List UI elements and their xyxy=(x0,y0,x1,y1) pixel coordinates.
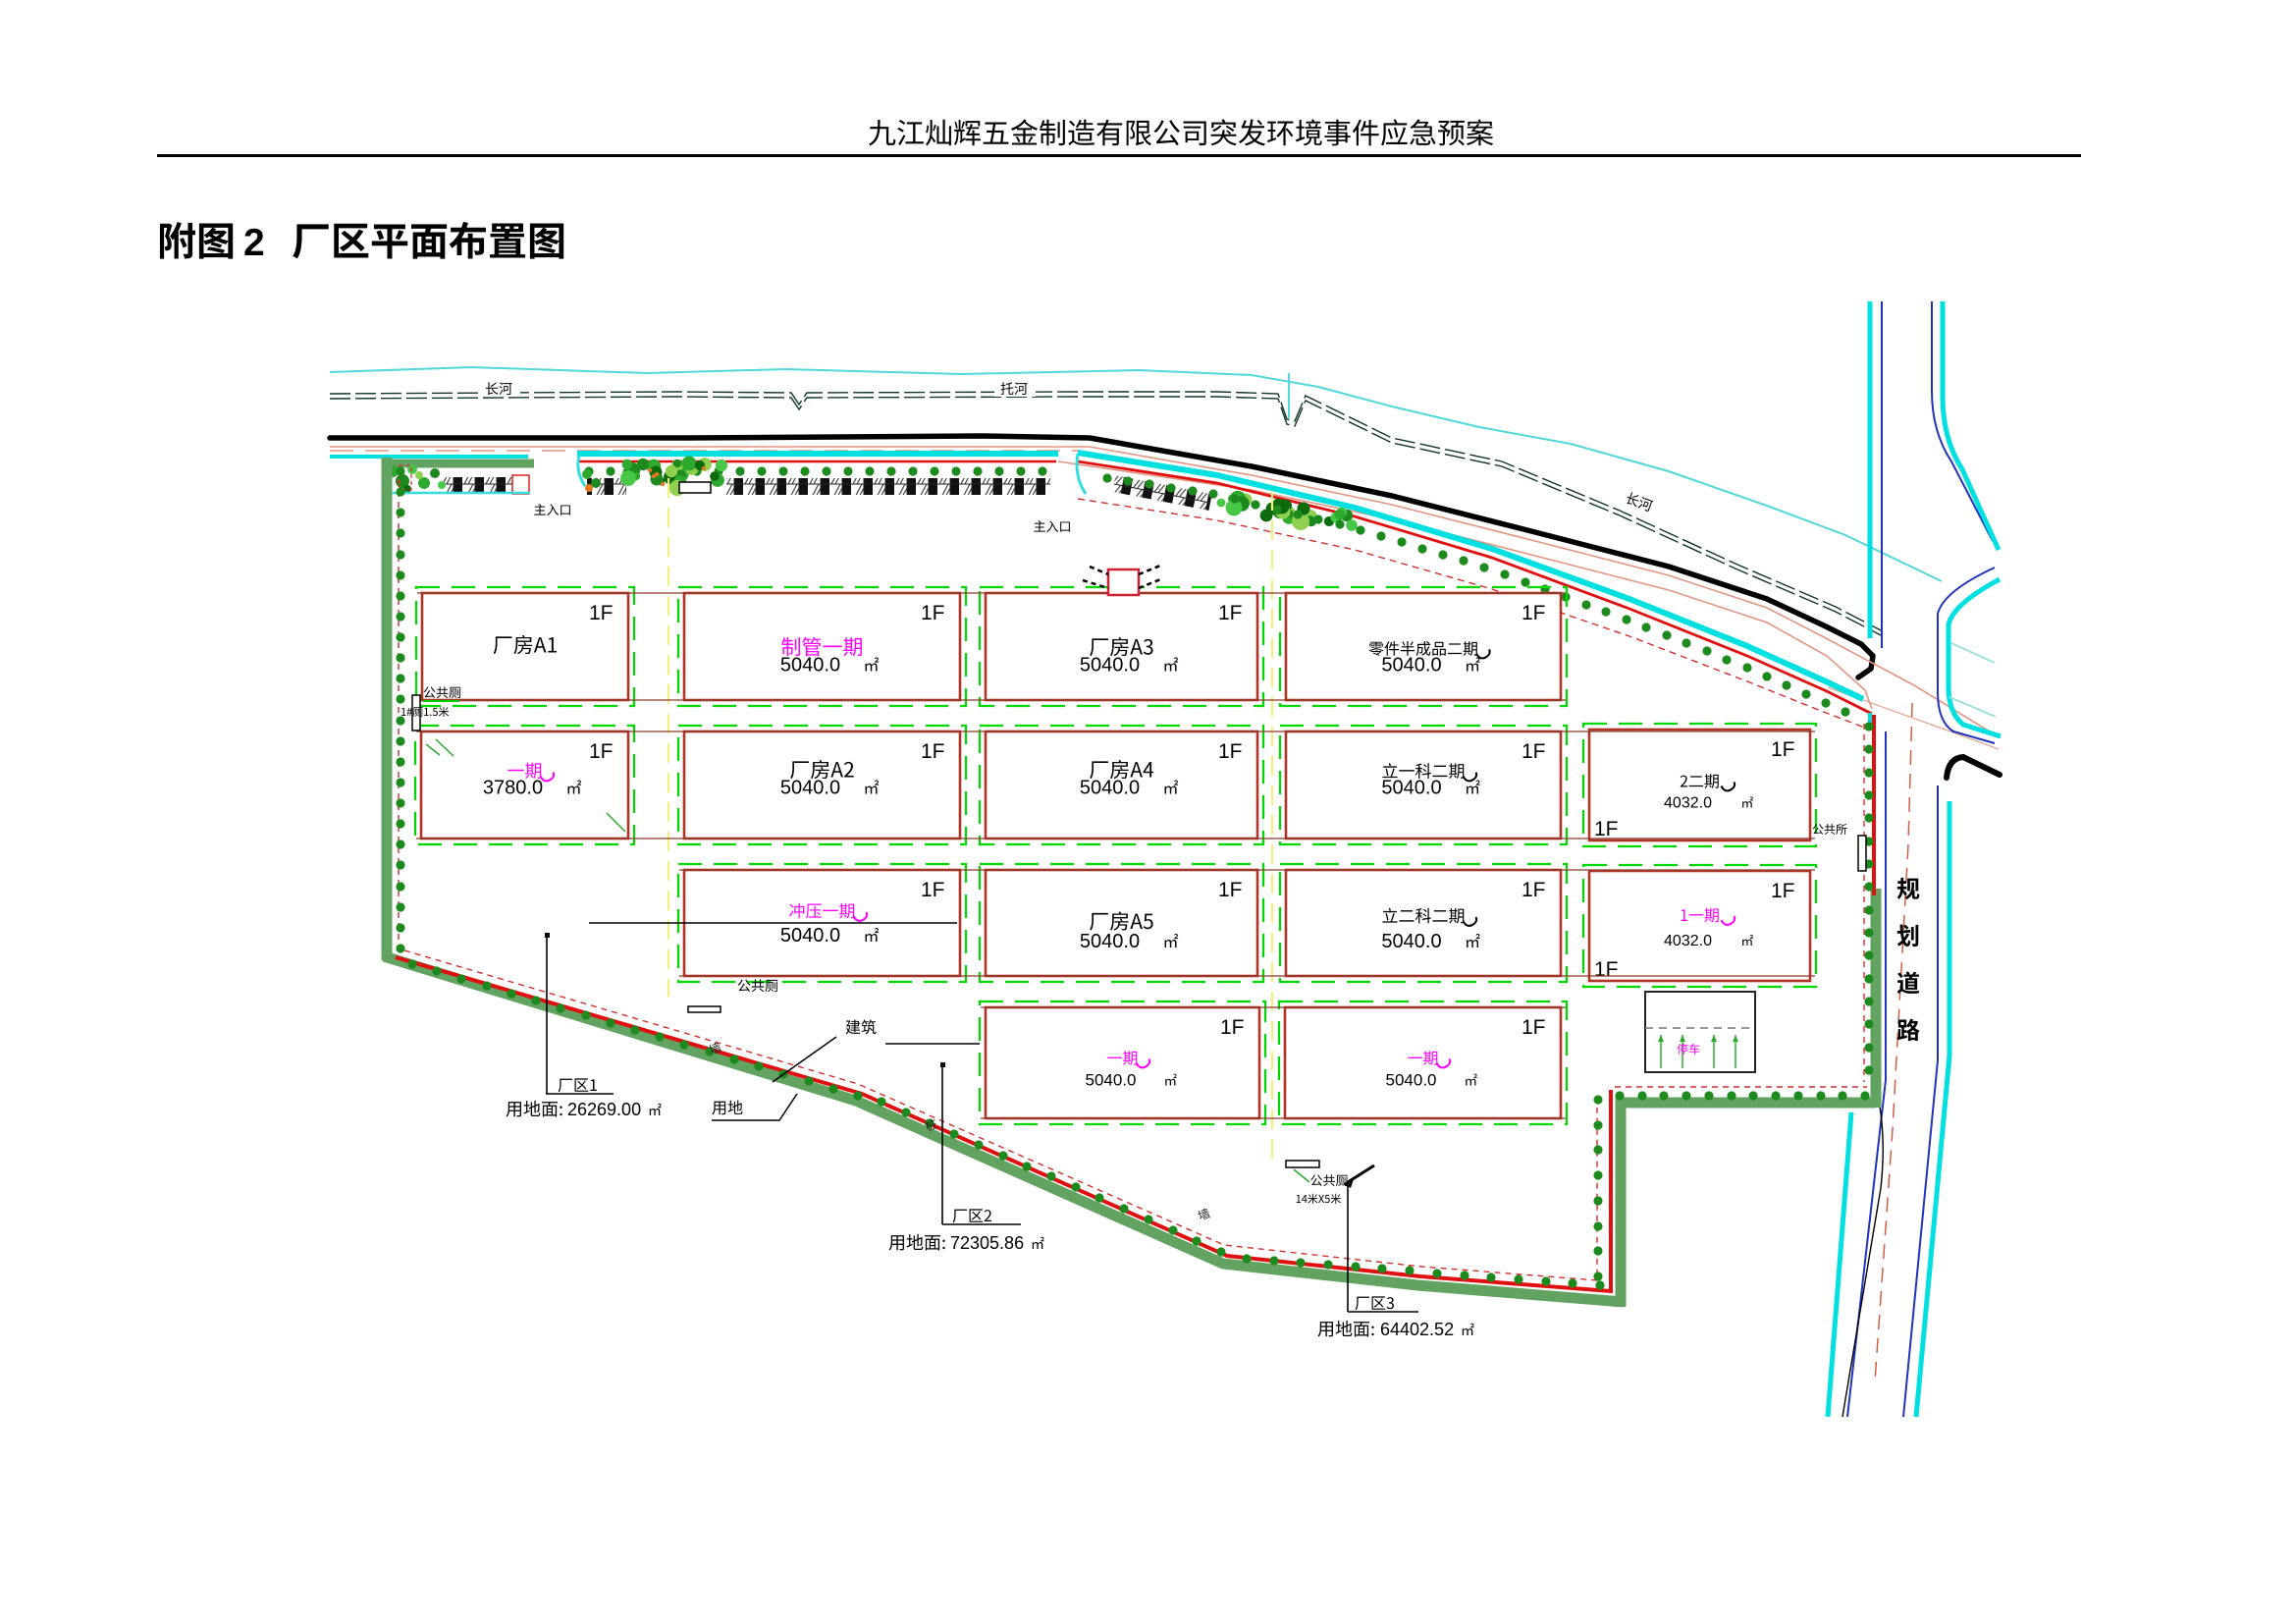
svg-text:4032.0: 4032.0 xyxy=(1664,933,1712,949)
svg-text:1F: 1F xyxy=(921,879,945,901)
svg-text:5040.0: 5040.0 xyxy=(1080,931,1140,952)
svg-text:1F: 1F xyxy=(589,740,614,763)
svg-text:5040.0: 5040.0 xyxy=(1381,655,1441,677)
svg-text:1F: 1F xyxy=(589,602,614,624)
svg-text:1F: 1F xyxy=(1771,880,1795,902)
svg-text:1F: 1F xyxy=(1522,1016,1546,1039)
svg-text:1F: 1F xyxy=(1218,879,1243,901)
svg-text:1F: 1F xyxy=(921,602,945,624)
svg-text:1F: 1F xyxy=(1522,879,1546,901)
svg-text:26269.00: 26269.00 xyxy=(567,1100,641,1119)
svg-text:1F: 1F xyxy=(1594,818,1619,840)
svg-text:5040.0: 5040.0 xyxy=(1381,931,1441,952)
svg-text:1F: 1F xyxy=(921,740,945,763)
svg-text:72305.86: 72305.86 xyxy=(950,1233,1024,1253)
svg-text:3780.0: 3780.0 xyxy=(483,778,543,799)
svg-text:1F: 1F xyxy=(1522,740,1546,763)
svg-text:2: 2 xyxy=(243,222,265,264)
svg-text:1F: 1F xyxy=(1771,738,1795,761)
svg-text:1F: 1F xyxy=(1594,958,1619,981)
svg-text:4032.0: 4032.0 xyxy=(1664,795,1712,812)
svg-text:64402.52: 64402.52 xyxy=(1380,1320,1454,1339)
svg-text:5040.0: 5040.0 xyxy=(1386,1071,1437,1090)
svg-text:5040.0: 5040.0 xyxy=(780,925,840,947)
svg-text:5040.0: 5040.0 xyxy=(1381,778,1441,799)
svg-text:1F: 1F xyxy=(1218,602,1243,624)
svg-text:5040.0: 5040.0 xyxy=(780,655,840,677)
svg-text:5040.0: 5040.0 xyxy=(780,778,840,799)
svg-text:1F: 1F xyxy=(1218,740,1243,763)
svg-text:5040.0: 5040.0 xyxy=(1080,655,1140,677)
svg-text:1F: 1F xyxy=(1220,1016,1245,1039)
svg-text:5040.0: 5040.0 xyxy=(1086,1071,1137,1090)
svg-text:5040.0: 5040.0 xyxy=(1080,778,1140,799)
svg-text:1F: 1F xyxy=(1522,602,1546,624)
